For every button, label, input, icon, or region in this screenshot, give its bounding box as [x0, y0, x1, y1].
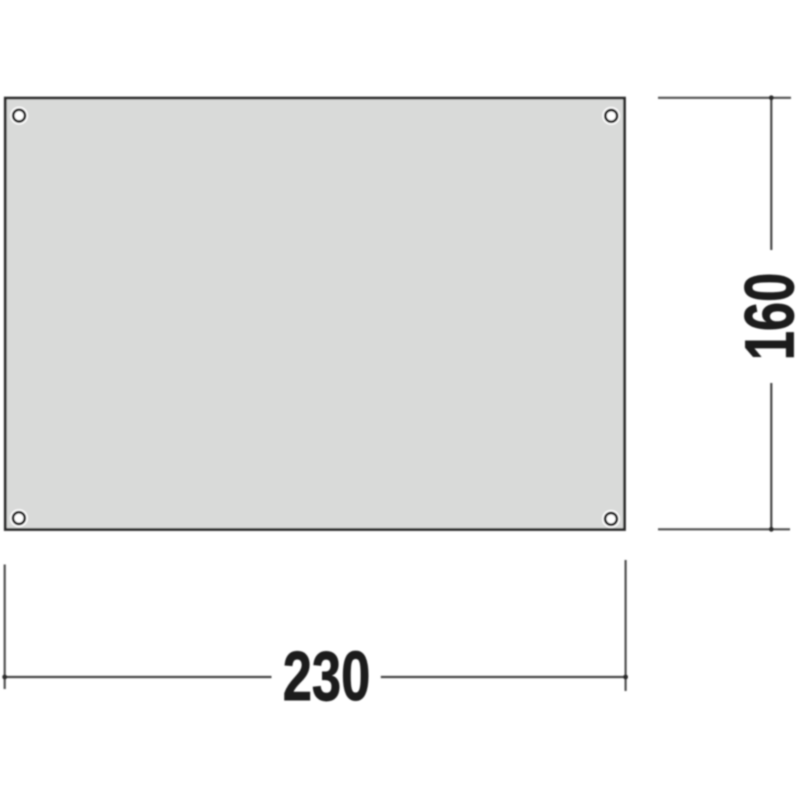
svg-text:160: 160 — [731, 273, 800, 361]
svg-text:230: 230 — [283, 638, 371, 716]
